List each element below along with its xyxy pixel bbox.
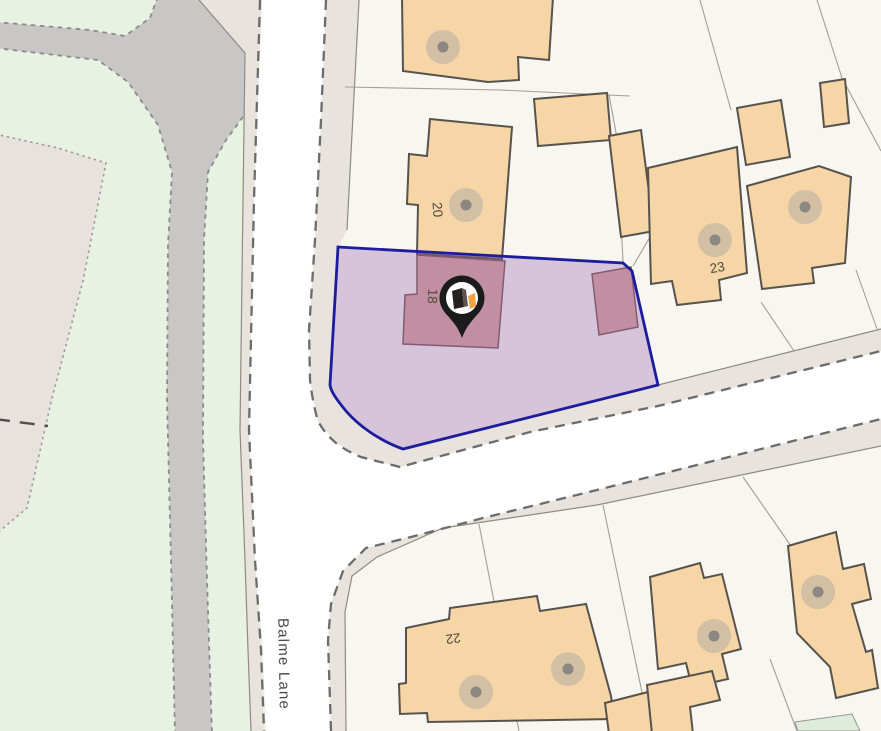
map-canvas[interactable]: 20 18 23 22 Balme Lane bbox=[0, 0, 881, 731]
house-number-22: 22 bbox=[445, 630, 462, 647]
building-footprint bbox=[820, 79, 849, 127]
house-number-18: 18 bbox=[425, 288, 441, 304]
building-footprint bbox=[534, 93, 611, 146]
logo-mark-black bbox=[452, 288, 464, 309]
street-name-label: Balme Lane bbox=[274, 618, 293, 710]
house-number-20: 20 bbox=[429, 202, 445, 218]
building-footprint bbox=[737, 100, 790, 165]
map-viewport[interactable]: 20 18 23 22 Balme Lane bbox=[0, 0, 881, 731]
house-number-23: 23 bbox=[709, 259, 726, 276]
